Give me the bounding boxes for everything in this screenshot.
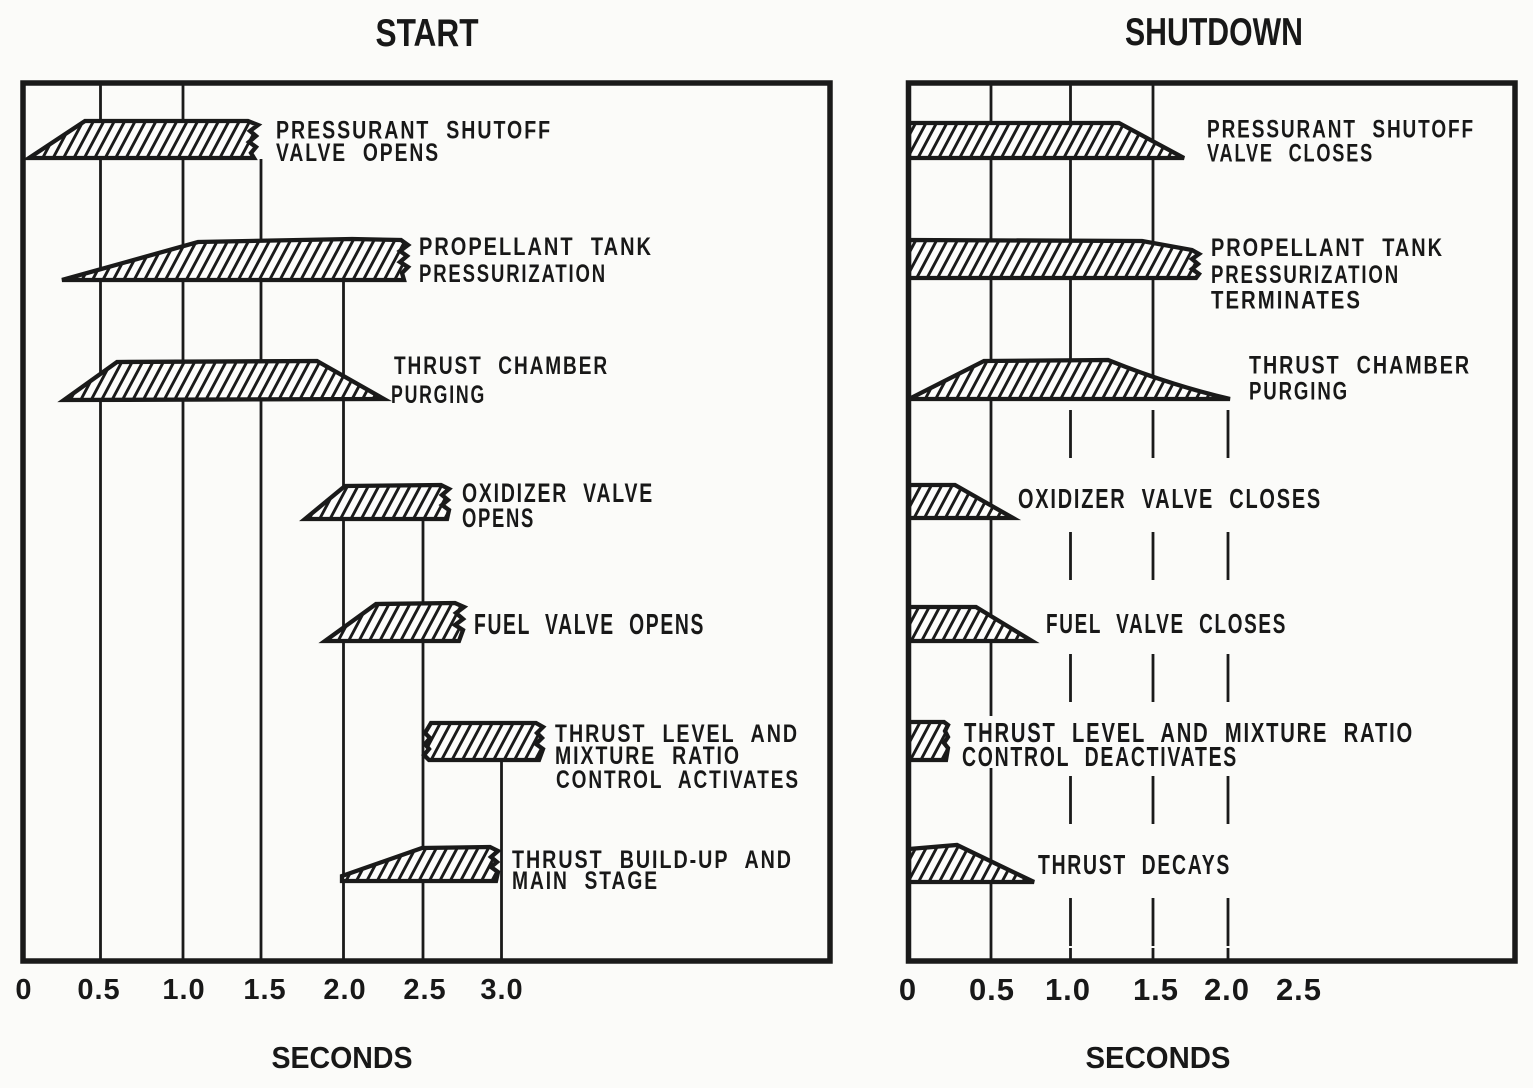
svg-text:0.5: 0.5 bbox=[77, 974, 120, 1006]
svg-text:PURGING: PURGING bbox=[1249, 378, 1349, 406]
svg-text:CONTROL DEACTIVATES: CONTROL DEACTIVATES bbox=[962, 741, 1238, 772]
svg-text:PROPELLANT TANK: PROPELLANT TANK bbox=[1211, 234, 1444, 262]
svg-text:1.0: 1.0 bbox=[162, 974, 205, 1006]
svg-text:TERMINATES: TERMINATES bbox=[1211, 287, 1362, 315]
svg-text:OXIDIZER VALVE CLOSES: OXIDIZER VALVE CLOSES bbox=[1018, 483, 1322, 514]
svg-text:2.0: 2.0 bbox=[1204, 972, 1250, 1007]
svg-text:1.5: 1.5 bbox=[1133, 972, 1179, 1007]
svg-text:2.0: 2.0 bbox=[323, 974, 366, 1006]
svg-text:START: START bbox=[376, 12, 479, 55]
svg-text:PURGING: PURGING bbox=[391, 381, 486, 409]
svg-text:2.5: 2.5 bbox=[1276, 972, 1322, 1007]
svg-text:PRESSURIZATION: PRESSURIZATION bbox=[1211, 261, 1400, 289]
svg-text:VALVE OPENS: VALVE OPENS bbox=[276, 139, 440, 167]
svg-text:SECONDS: SECONDS bbox=[272, 1040, 413, 1075]
svg-text:THRUST CHAMBER: THRUST CHAMBER bbox=[1249, 352, 1471, 380]
svg-text:0: 0 bbox=[899, 972, 917, 1007]
svg-text:0.5: 0.5 bbox=[969, 972, 1015, 1007]
svg-text:PROPELLANT TANK: PROPELLANT TANK bbox=[419, 233, 653, 261]
svg-text:0: 0 bbox=[15, 974, 32, 1006]
svg-text:SECONDS: SECONDS bbox=[1086, 1040, 1231, 1075]
svg-text:FUEL VALVE CLOSES: FUEL VALVE CLOSES bbox=[1046, 608, 1287, 639]
svg-text:CONTROL ACTIVATES: CONTROL ACTIVATES bbox=[556, 766, 800, 794]
svg-text:THRUST DECAYS: THRUST DECAYS bbox=[1038, 849, 1231, 880]
svg-text:2.5: 2.5 bbox=[403, 974, 446, 1006]
svg-text:THRUST CHAMBER: THRUST CHAMBER bbox=[394, 352, 609, 380]
svg-text:PRESSURIZATION: PRESSURIZATION bbox=[419, 260, 607, 288]
svg-text:SHUTDOWN: SHUTDOWN bbox=[1125, 11, 1303, 54]
svg-text:3.0: 3.0 bbox=[480, 974, 523, 1006]
svg-text:1.0: 1.0 bbox=[1045, 972, 1091, 1007]
svg-text:FUEL VALVE OPENS: FUEL VALVE OPENS bbox=[474, 609, 705, 641]
svg-text:OPENS: OPENS bbox=[462, 503, 535, 533]
svg-text:1.5: 1.5 bbox=[243, 974, 286, 1006]
svg-text:VALVE CLOSES: VALVE CLOSES bbox=[1207, 140, 1374, 168]
svg-text:MAIN STAGE: MAIN STAGE bbox=[512, 867, 659, 895]
